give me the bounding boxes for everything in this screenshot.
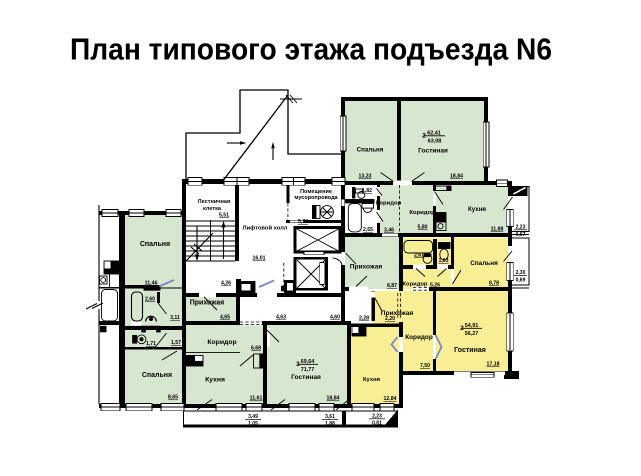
svg-text:мусоропровода: мусоропровода bbox=[294, 195, 338, 201]
svg-text:63,08: 63,08 bbox=[428, 139, 442, 145]
svg-text:Кухня: Кухня bbox=[468, 206, 486, 213]
svg-text:56,27: 56,27 bbox=[465, 331, 479, 337]
svg-text:3,46: 3,46 bbox=[384, 228, 394, 234]
svg-text:18,84: 18,84 bbox=[327, 396, 340, 402]
svg-text:Спальня: Спальня bbox=[357, 147, 384, 154]
svg-text:4,26: 4,26 bbox=[221, 281, 231, 287]
svg-text:7,50: 7,50 bbox=[420, 363, 430, 369]
svg-text:8,87: 8,87 bbox=[387, 283, 397, 289]
svg-text:16,01: 16,01 bbox=[253, 256, 266, 262]
svg-text:План типового этажа подъезда N: План типового этажа подъезда N6 bbox=[70, 32, 552, 67]
svg-text:2,60: 2,60 bbox=[145, 297, 155, 303]
svg-text:71,77: 71,77 bbox=[301, 367, 315, 373]
svg-text:Коридор: Коридор bbox=[376, 201, 402, 207]
svg-text:1,71: 1,71 bbox=[146, 341, 156, 347]
svg-text:8,78: 8,78 bbox=[489, 281, 499, 287]
svg-text:4,63: 4,63 bbox=[276, 315, 286, 321]
svg-text:Помещение: Помещение bbox=[300, 189, 332, 195]
svg-text:8,65: 8,65 bbox=[168, 395, 178, 401]
svg-text:11,46: 11,46 bbox=[145, 281, 158, 287]
svg-text:11,61: 11,61 bbox=[250, 396, 263, 402]
svg-text:4,60: 4,60 bbox=[330, 315, 340, 321]
svg-text:2,28: 2,28 bbox=[359, 316, 369, 322]
svg-text:18,84: 18,84 bbox=[450, 174, 463, 180]
svg-text:1,03: 1,03 bbox=[438, 258, 448, 264]
svg-text:1,88: 1,88 bbox=[325, 421, 335, 427]
svg-text:12,84: 12,84 bbox=[384, 396, 397, 402]
svg-text:Прихожая: Прихожая bbox=[350, 264, 383, 271]
svg-text:Лестничная: Лестничная bbox=[198, 199, 231, 205]
svg-text:0,69: 0,69 bbox=[516, 277, 526, 283]
svg-text:17,18: 17,18 bbox=[487, 362, 500, 368]
svg-text:5,51: 5,51 bbox=[219, 213, 229, 219]
svg-text:клетка: клетка bbox=[203, 206, 222, 212]
svg-text:1,82: 1,82 bbox=[362, 188, 372, 194]
svg-text:Коридор: Коридор bbox=[403, 282, 428, 288]
svg-text:6,68: 6,68 bbox=[251, 346, 261, 352]
svg-text:0,67: 0,67 bbox=[516, 232, 526, 238]
svg-text:5,80: 5,80 bbox=[417, 225, 427, 231]
svg-text:Спальня: Спальня bbox=[140, 241, 170, 248]
svg-text:Прихожая: Прихожая bbox=[190, 300, 225, 307]
svg-text:Коридор: Коридор bbox=[409, 210, 435, 216]
svg-text:Спальня: Спальня bbox=[470, 260, 498, 267]
svg-text:2,20: 2,20 bbox=[385, 316, 395, 322]
svg-text:3,11: 3,11 bbox=[170, 315, 180, 321]
svg-text:Коридор: Коридор bbox=[207, 339, 236, 346]
svg-text:2,65: 2,65 bbox=[363, 227, 373, 233]
svg-text:0,81: 0,81 bbox=[372, 421, 382, 427]
svg-text:1,05: 1,05 bbox=[248, 421, 258, 427]
svg-text:Лифтовой холл: Лифтовой холл bbox=[243, 225, 288, 232]
svg-text:11,88: 11,88 bbox=[491, 227, 504, 233]
svg-text:5,26: 5,26 bbox=[430, 283, 440, 289]
svg-text:1,57: 1,57 bbox=[171, 340, 181, 346]
svg-text:Спальня: Спальня bbox=[142, 372, 172, 379]
svg-text:13,23: 13,23 bbox=[359, 174, 372, 180]
svg-text:Гостиная: Гостиная bbox=[418, 148, 448, 155]
svg-text:Кухня: Кухня bbox=[363, 377, 380, 383]
svg-text:Кухня: Кухня bbox=[205, 377, 225, 384]
svg-text:Гостиная: Гостиная bbox=[291, 374, 321, 381]
svg-text:4,65: 4,65 bbox=[220, 315, 230, 321]
svg-text:2,61: 2,61 bbox=[414, 253, 424, 259]
svg-text:Гостиная: Гостиная bbox=[454, 347, 486, 354]
svg-text:5,74: 5,74 bbox=[298, 219, 308, 225]
svg-text:Коридор: Коридор bbox=[405, 334, 433, 341]
